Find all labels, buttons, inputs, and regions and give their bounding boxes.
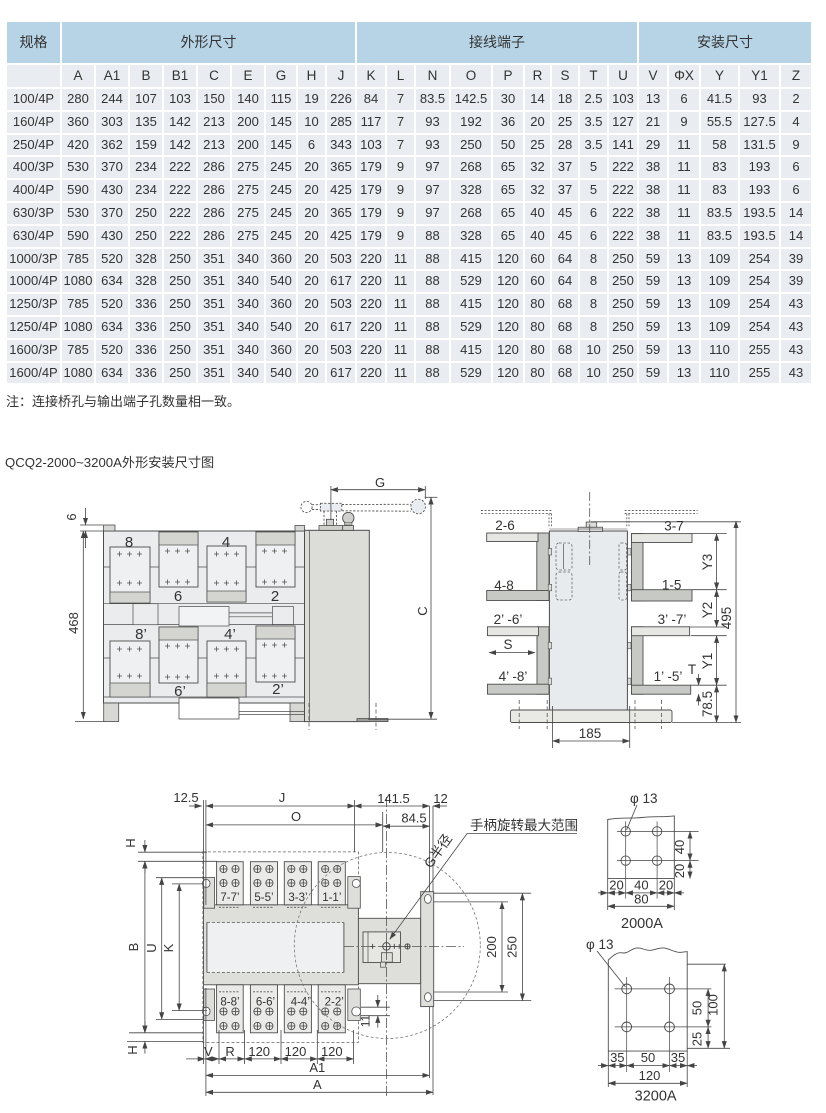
svg-text:120: 120 bbox=[285, 1044, 307, 1059]
svg-text:250: 250 bbox=[505, 936, 520, 958]
svg-text:C: C bbox=[415, 606, 430, 615]
svg-text:468: 468 bbox=[66, 612, 81, 634]
svg-text:K: K bbox=[161, 943, 176, 952]
svg-text:6-6’: 6-6’ bbox=[256, 997, 275, 1009]
svg-text:H: H bbox=[125, 1045, 140, 1054]
svg-text:4-8: 4-8 bbox=[494, 578, 514, 593]
svg-text:Y2: Y2 bbox=[700, 602, 715, 619]
svg-text:120: 120 bbox=[248, 1044, 270, 1059]
svg-text:6: 6 bbox=[64, 513, 79, 520]
svg-text:2000A: 2000A bbox=[621, 916, 663, 932]
svg-text:5-5’: 5-5’ bbox=[254, 892, 273, 904]
svg-text:手柄旋转最大范围: 手柄旋转最大范围 bbox=[470, 818, 578, 833]
svg-text:B: B bbox=[126, 943, 141, 952]
svg-text:Y3: Y3 bbox=[700, 554, 715, 571]
svg-text:141.5: 141.5 bbox=[377, 791, 410, 806]
svg-text:12.5: 12.5 bbox=[173, 790, 198, 805]
svg-text:A1: A1 bbox=[309, 1060, 325, 1075]
svg-text:495: 495 bbox=[719, 607, 734, 630]
svg-text:1’ -5’: 1’ -5’ bbox=[654, 669, 683, 684]
svg-text:J: J bbox=[279, 790, 286, 805]
svg-text:1-5: 1-5 bbox=[662, 578, 682, 593]
svg-text:185: 185 bbox=[579, 726, 602, 741]
svg-text:6: 6 bbox=[174, 588, 182, 605]
svg-text:11: 11 bbox=[359, 1014, 373, 1027]
svg-text:T: T bbox=[688, 662, 696, 677]
svg-text:8-8’: 8-8’ bbox=[220, 997, 239, 1009]
svg-text:2-2’: 2-2’ bbox=[325, 997, 344, 1009]
svg-text:V: V bbox=[204, 1044, 213, 1059]
svg-text:80: 80 bbox=[634, 892, 648, 907]
svg-text:100: 100 bbox=[706, 994, 721, 1016]
svg-text:35: 35 bbox=[610, 1050, 624, 1065]
svg-text:7-7’: 7-7’ bbox=[220, 892, 239, 904]
svg-text:G: G bbox=[375, 475, 385, 490]
svg-text:4’: 4’ bbox=[224, 626, 236, 643]
svg-text:120: 120 bbox=[639, 1068, 661, 1083]
svg-text:50: 50 bbox=[641, 1050, 655, 1065]
svg-text:2: 2 bbox=[271, 588, 279, 605]
svg-text:4-4’: 4-4’ bbox=[291, 997, 310, 1009]
svg-text:U: U bbox=[144, 943, 159, 952]
svg-text:A: A bbox=[313, 1077, 322, 1092]
svg-text:40: 40 bbox=[634, 878, 648, 893]
svg-text:40: 40 bbox=[672, 840, 687, 854]
svg-text:O: O bbox=[291, 809, 301, 824]
svg-text:35: 35 bbox=[671, 1050, 685, 1065]
svg-text:H: H bbox=[123, 838, 138, 847]
svg-text:78.5: 78.5 bbox=[700, 691, 715, 717]
svg-text:2’: 2’ bbox=[272, 681, 284, 698]
svg-text:20: 20 bbox=[672, 864, 687, 878]
svg-text:25: 25 bbox=[690, 1032, 705, 1046]
svg-text:2’ -6’: 2’ -6’ bbox=[494, 612, 523, 627]
svg-text:50: 50 bbox=[690, 1001, 705, 1015]
svg-text:3-7: 3-7 bbox=[664, 519, 684, 534]
svg-text:Y1: Y1 bbox=[700, 653, 715, 670]
svg-text:84.5: 84.5 bbox=[401, 811, 426, 826]
svg-text:12: 12 bbox=[433, 791, 447, 806]
svg-text:1-1’: 1-1’ bbox=[322, 892, 341, 904]
svg-text:120: 120 bbox=[321, 1044, 343, 1059]
svg-text:φ 13: φ 13 bbox=[586, 937, 614, 952]
svg-text:200: 200 bbox=[484, 936, 499, 958]
svg-text:6’: 6’ bbox=[174, 683, 186, 700]
svg-text:2-6: 2-6 bbox=[495, 518, 515, 533]
svg-text:4: 4 bbox=[222, 534, 230, 551]
svg-text:3’ -7’: 3’ -7’ bbox=[658, 612, 687, 627]
svg-text:S: S bbox=[503, 637, 512, 652]
svg-text:R: R bbox=[225, 1044, 234, 1059]
svg-text:20: 20 bbox=[609, 878, 623, 893]
svg-text:8’: 8’ bbox=[135, 626, 147, 643]
svg-text:20: 20 bbox=[659, 878, 673, 893]
svg-text:G半径: G半径 bbox=[421, 831, 455, 870]
svg-text:8: 8 bbox=[125, 534, 133, 551]
svg-text:4’ -8’: 4’ -8’ bbox=[499, 669, 528, 684]
svg-text:3200A: 3200A bbox=[635, 1089, 677, 1105]
svg-text:φ 13: φ 13 bbox=[630, 791, 658, 806]
